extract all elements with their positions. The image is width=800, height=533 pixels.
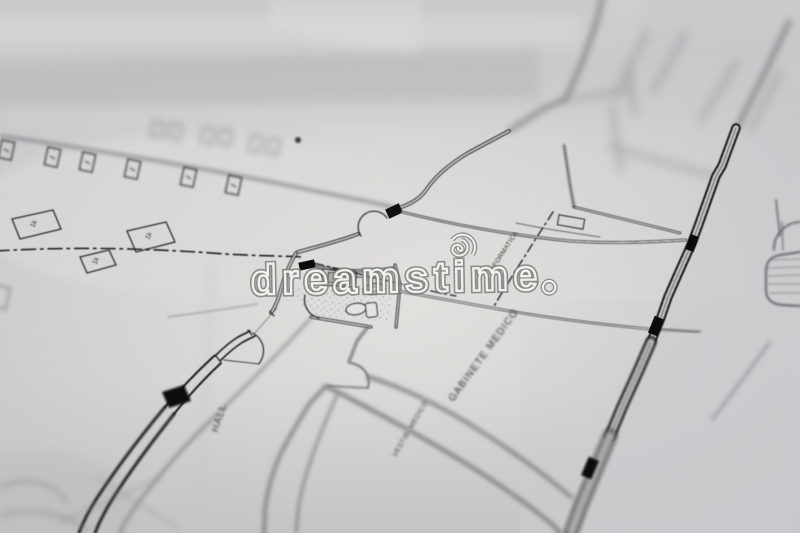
svg-text:dreamstime: dreamstime	[251, 251, 541, 303]
